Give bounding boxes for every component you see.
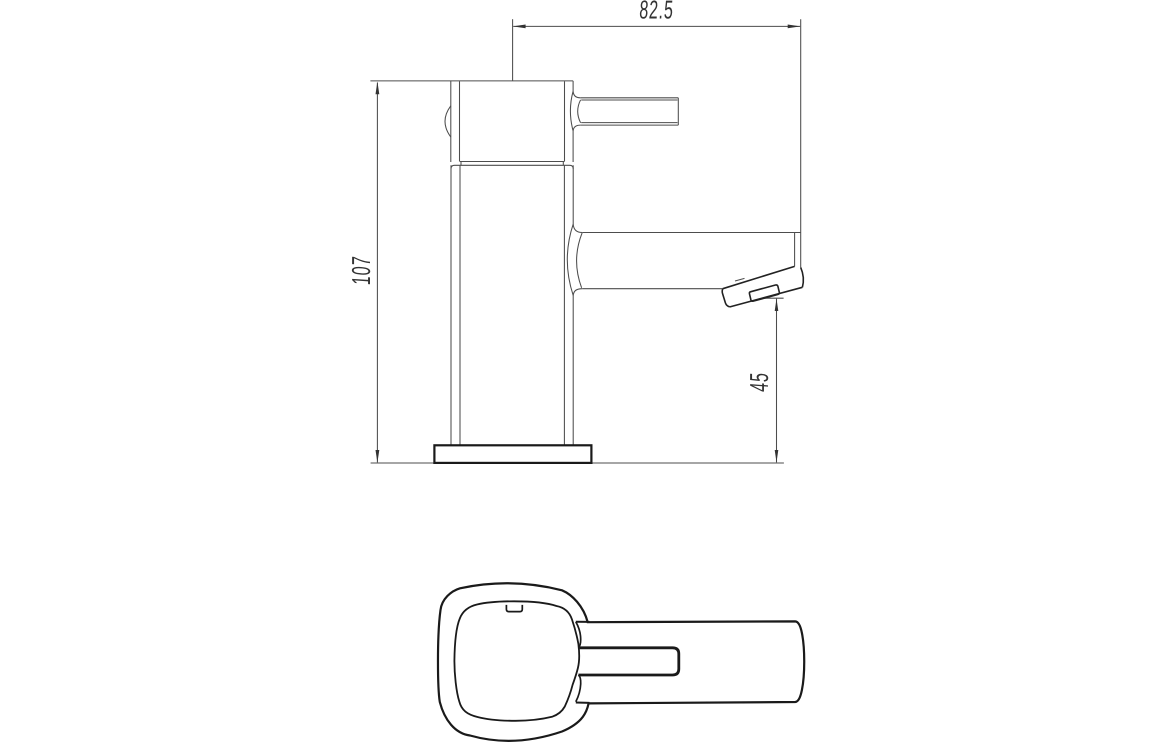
svg-text:45: 45 bbox=[744, 371, 774, 392]
svg-text:107: 107 bbox=[346, 255, 376, 286]
svg-text:82.5: 82.5 bbox=[638, 0, 674, 25]
